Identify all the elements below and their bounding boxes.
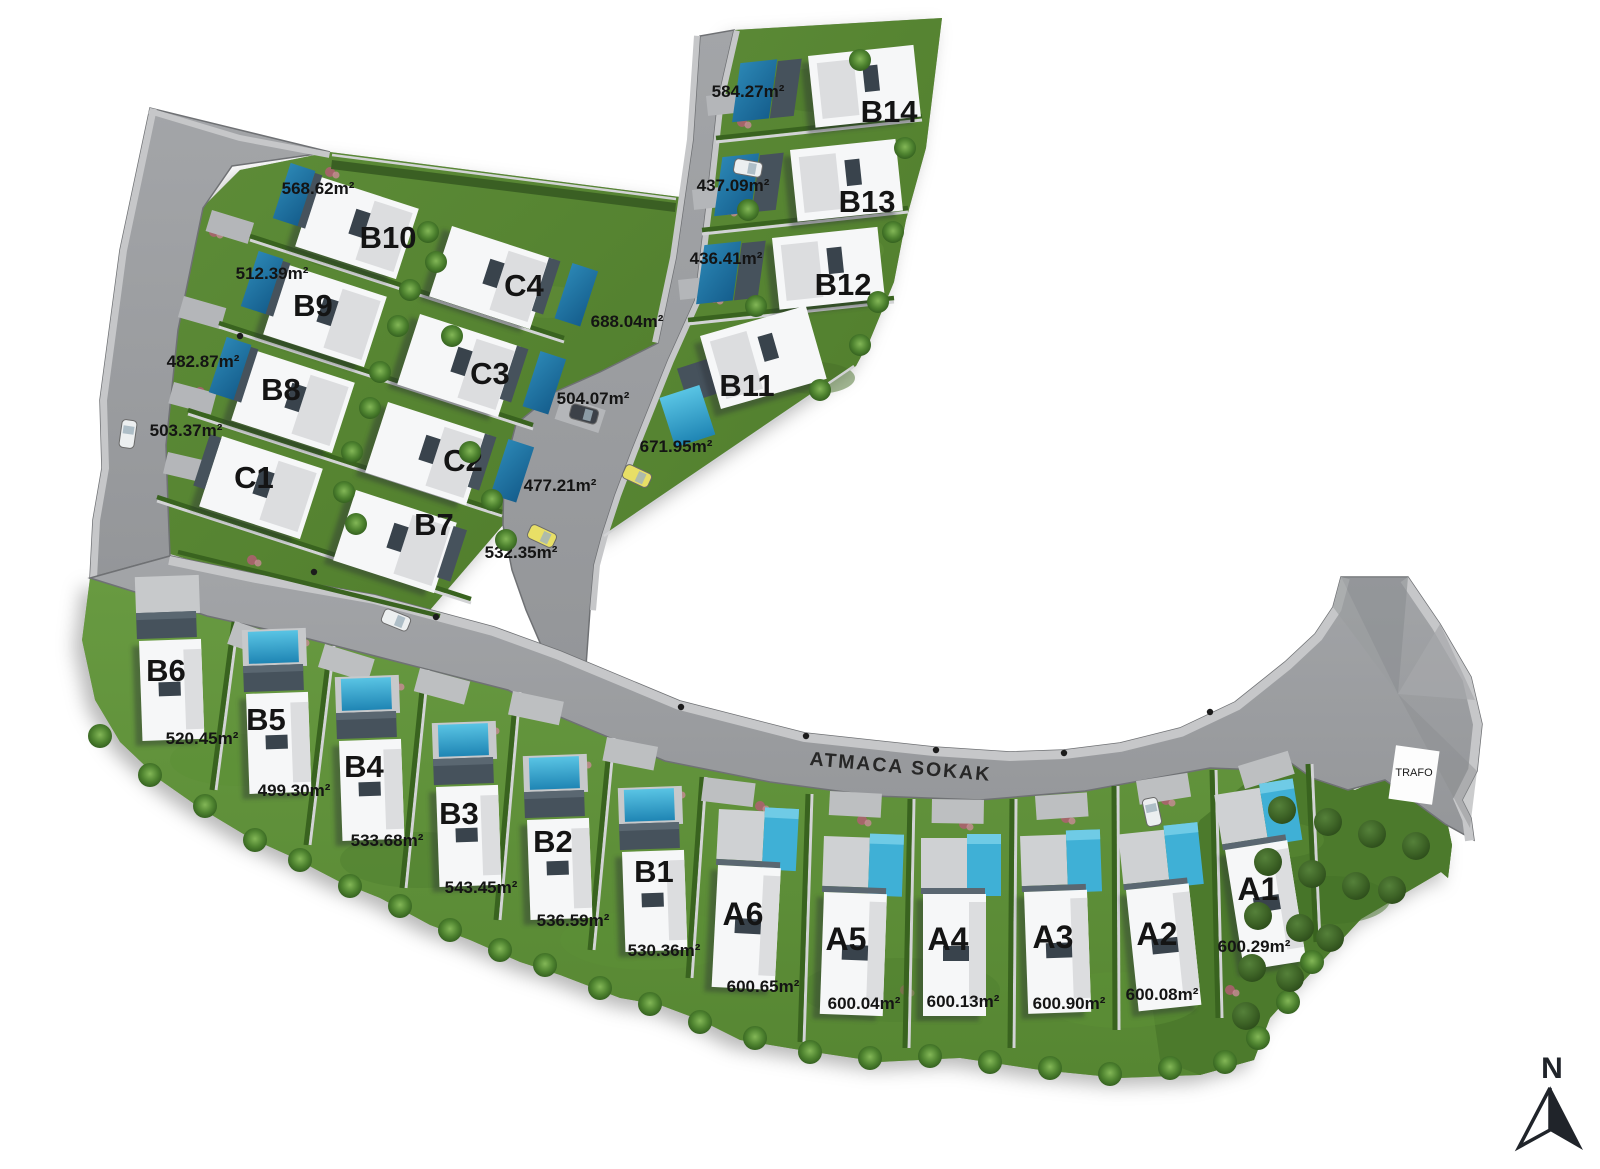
svg-text:688.04m²: 688.04m² xyxy=(591,312,664,331)
svg-text:B1: B1 xyxy=(634,854,674,889)
svg-text:B9: B9 xyxy=(293,288,333,323)
svg-text:B4: B4 xyxy=(344,749,384,784)
svg-text:C3: C3 xyxy=(470,356,510,391)
svg-text:C1: C1 xyxy=(234,460,274,495)
svg-text:504.07m²: 504.07m² xyxy=(557,389,630,408)
svg-text:B6: B6 xyxy=(146,653,186,688)
svg-text:A5: A5 xyxy=(826,921,867,957)
svg-text:B2: B2 xyxy=(533,824,573,859)
svg-text:536.59m²: 536.59m² xyxy=(537,911,610,930)
svg-text:B8: B8 xyxy=(261,372,301,407)
svg-text:A4: A4 xyxy=(928,921,969,957)
svg-text:A2: A2 xyxy=(1137,916,1178,952)
svg-text:600.13m²: 600.13m² xyxy=(927,992,1000,1011)
svg-text:584.27m²: 584.27m² xyxy=(712,82,785,101)
svg-text:600.29m²: 600.29m² xyxy=(1218,937,1291,956)
svg-text:671.95m²: 671.95m² xyxy=(640,437,713,456)
svg-text:C4: C4 xyxy=(504,268,544,303)
svg-text:B13: B13 xyxy=(839,184,896,219)
svg-text:TRAFO: TRAFO xyxy=(1395,767,1433,779)
svg-text:533.68m²: 533.68m² xyxy=(351,831,424,850)
svg-text:530.36m²: 530.36m² xyxy=(628,941,701,960)
svg-text:A6: A6 xyxy=(723,896,764,932)
svg-text:B3: B3 xyxy=(439,796,479,831)
svg-text:A3: A3 xyxy=(1033,919,1074,955)
svg-text:B14: B14 xyxy=(861,94,919,129)
svg-text:512.39m²: 512.39m² xyxy=(236,264,309,283)
svg-text:B11: B11 xyxy=(719,368,774,403)
svg-text:B7: B7 xyxy=(414,507,454,542)
svg-text:600.08m²: 600.08m² xyxy=(1126,985,1199,1004)
svg-text:437.09m²: 437.09m² xyxy=(697,176,770,195)
svg-text:B10: B10 xyxy=(360,220,417,255)
svg-text:499.30m²: 499.30m² xyxy=(258,781,331,800)
svg-text:600.90m²: 600.90m² xyxy=(1033,994,1106,1013)
svg-text:A1: A1 xyxy=(1238,871,1279,907)
svg-text:600.65m²: 600.65m² xyxy=(727,977,800,996)
svg-text:600.04m²: 600.04m² xyxy=(828,994,901,1013)
svg-text:568.62m²: 568.62m² xyxy=(282,179,355,198)
svg-text:B12: B12 xyxy=(815,267,872,302)
svg-text:520.45m²: 520.45m² xyxy=(166,729,239,748)
svg-text:482.87m²: 482.87m² xyxy=(167,352,240,371)
svg-text:477.21m²: 477.21m² xyxy=(524,476,597,495)
svg-text:543.45m²: 543.45m² xyxy=(445,878,518,897)
svg-text:436.41m²: 436.41m² xyxy=(690,249,763,268)
svg-text:503.37m²: 503.37m² xyxy=(150,421,223,440)
svg-text:N: N xyxy=(1541,1052,1563,1085)
svg-text:B5: B5 xyxy=(246,702,286,737)
